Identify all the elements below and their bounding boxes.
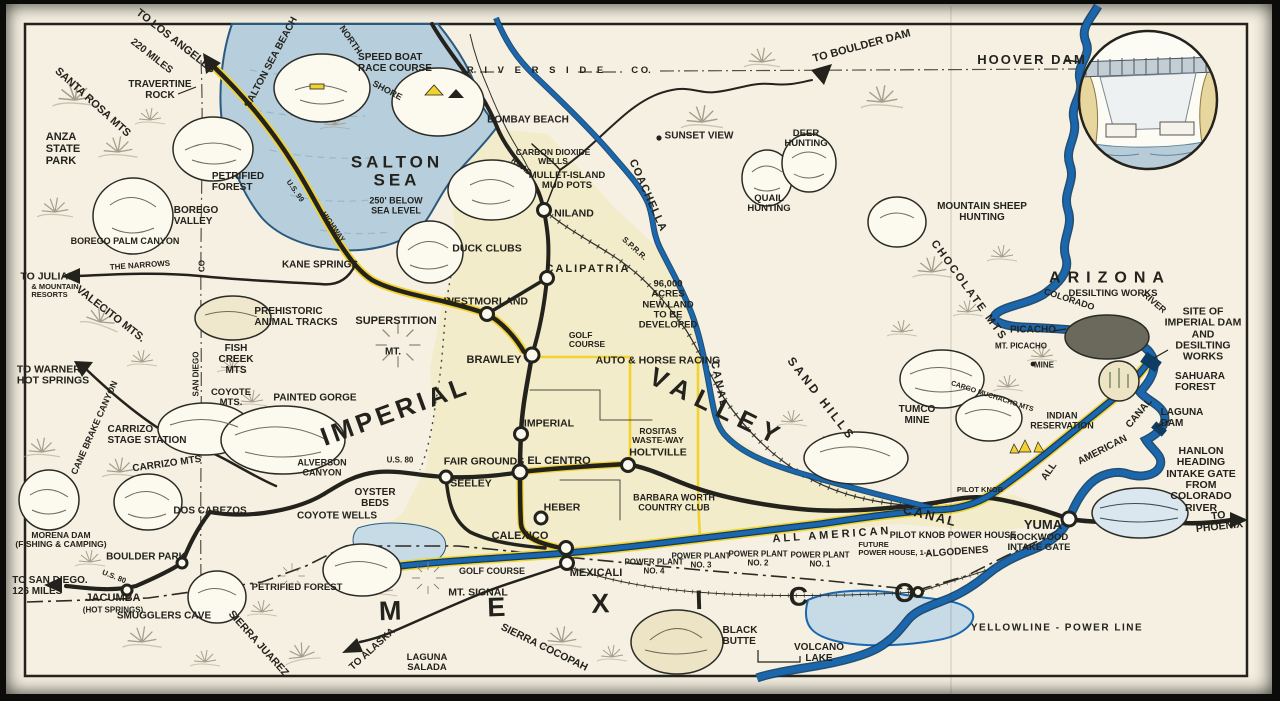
town-marker-yuma — [1062, 512, 1076, 526]
morena-dam-vignette — [19, 470, 79, 530]
yuma-bridge-vignette — [1092, 488, 1188, 538]
town-marker-holtville — [622, 459, 635, 472]
town-marker-heber — [535, 512, 547, 524]
cargo-muchacho-vignette — [956, 395, 1022, 441]
deer-hunting-vignette — [782, 134, 836, 192]
petrified-forest-s-vignette — [323, 544, 401, 596]
town-marker-imperial — [515, 428, 528, 441]
imperial-dam-site-vignette — [1065, 315, 1149, 359]
sand-hills-vignette — [804, 432, 908, 484]
mullet-island-vignette — [448, 160, 536, 220]
to-julian-road — [78, 265, 355, 284]
map-graphics — [0, 0, 1280, 701]
mountain-sheep-vignette — [868, 197, 926, 247]
town-marker-calexico — [560, 542, 573, 555]
town-marker-brawley — [525, 348, 539, 362]
pictorial-map: TO LOS ANGELES220 MILESTRAVERTINE ROCKSA… — [0, 0, 1280, 701]
beach-vignette — [392, 68, 484, 136]
petrified-forest-vignette — [173, 117, 253, 181]
town-marker-westmorland — [481, 308, 494, 321]
town-marker-mexicali — [561, 557, 574, 570]
borego-palm-canyon-vignette — [93, 178, 173, 254]
town-marker-el-centro — [513, 465, 527, 479]
smugglers-cave-vignette — [188, 571, 246, 623]
town-marker-jacumba — [122, 585, 132, 595]
town-marker-algodenes — [914, 588, 923, 597]
town-marker-calipatria — [541, 272, 554, 285]
duck-clubs-vignette — [397, 221, 463, 283]
town-marker-seeley — [440, 471, 452, 483]
town-marker-niland — [538, 204, 551, 217]
paper-fold-line — [950, 6, 952, 694]
prehistoric-tracks-vignette — [195, 296, 271, 340]
painted-gorge-vignette — [221, 406, 345, 474]
black-butte-vignette — [631, 610, 723, 674]
carrizo-mts-vignette — [114, 474, 182, 530]
town-marker-boulder-park — [177, 558, 187, 568]
